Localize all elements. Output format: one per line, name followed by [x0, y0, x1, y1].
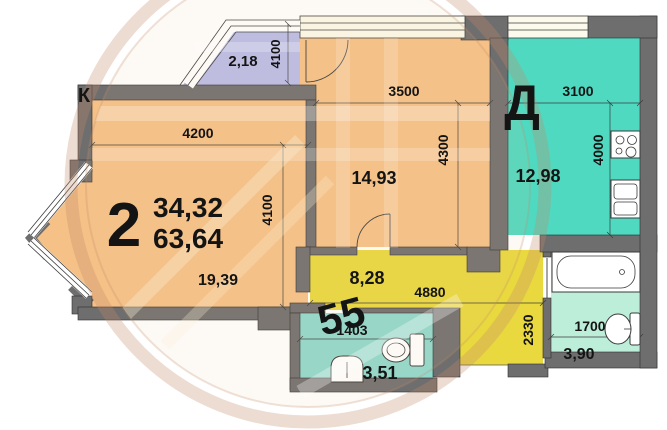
bedroom-window — [300, 16, 465, 38]
wall-living-bedroom-stub — [306, 247, 357, 255]
bedroom-dim-h: 4300 — [435, 134, 451, 165]
room-bedroom — [300, 38, 490, 247]
wall-living-bedroom — [306, 100, 316, 247]
bathroom-area-label: 3,51 — [362, 363, 397, 383]
wall-pier-bath-left — [290, 303, 325, 313]
wall-hall-bottom — [508, 364, 548, 377]
wall-kitchen-bottom — [540, 235, 657, 252]
floor-plan: К Д 55 2 34,32 63,64 19,39 4200 4100 2,1… — [0, 0, 667, 430]
wall-bedroom-kitchen — [490, 38, 508, 250]
wall-wc-left — [543, 298, 551, 358]
apartment-total-area: 63,64 — [153, 223, 223, 254]
wall-pier-windows — [461, 16, 508, 40]
wc-area-label: 3,90 — [563, 346, 594, 363]
living-dim-w: 4200 — [182, 125, 213, 141]
bathroom-sink-icon — [331, 356, 363, 382]
wall-bath-right — [433, 308, 460, 377]
wall-top-right-corner — [588, 16, 657, 38]
kitchen-sink-icon — [611, 180, 640, 218]
bathroom-dim-w: 1403 — [336, 322, 367, 338]
bathtub-icon — [552, 252, 640, 292]
wall-hall-top — [390, 247, 467, 255]
floor-plan-page: К Д 55 2 34,32 63,64 19,39 4200 4100 2,1… — [0, 0, 667, 430]
wall-living-hall — [296, 247, 310, 292]
balcony-dim-h: 4100 — [268, 40, 283, 69]
apartment-living-area: 34,32 — [153, 192, 223, 223]
apartment-number: 2 — [107, 191, 141, 260]
kitchen-area-label: 12,98 — [515, 166, 560, 186]
bedroom-area-label: 14,93 — [351, 168, 396, 188]
wall-right — [640, 16, 657, 368]
living-dim-h: 4100 — [259, 194, 275, 225]
kitchen-dim-w: 3100 — [562, 83, 593, 99]
kitchen-dim-h: 4000 — [590, 134, 606, 165]
wall-bath-top — [355, 308, 433, 313]
wc-toilet-icon — [605, 313, 640, 345]
wall-pier-hall-kitchen — [467, 247, 500, 272]
hall-dim-w: 4880 — [414, 284, 445, 300]
wc-dim-w: 1700 — [574, 318, 605, 334]
kitchen-window — [508, 16, 588, 38]
stove-icon — [611, 131, 640, 158]
balcony-area-label: 2,18 — [228, 53, 257, 70]
wall-left — [78, 85, 92, 172]
wall-top — [78, 85, 316, 100]
hall-area-label: 8,28 — [349, 268, 384, 288]
bedroom-dim-w: 3500 — [388, 83, 419, 99]
hall-dim-h: 2330 — [520, 314, 536, 345]
living-area-label: 19,39 — [198, 272, 238, 289]
